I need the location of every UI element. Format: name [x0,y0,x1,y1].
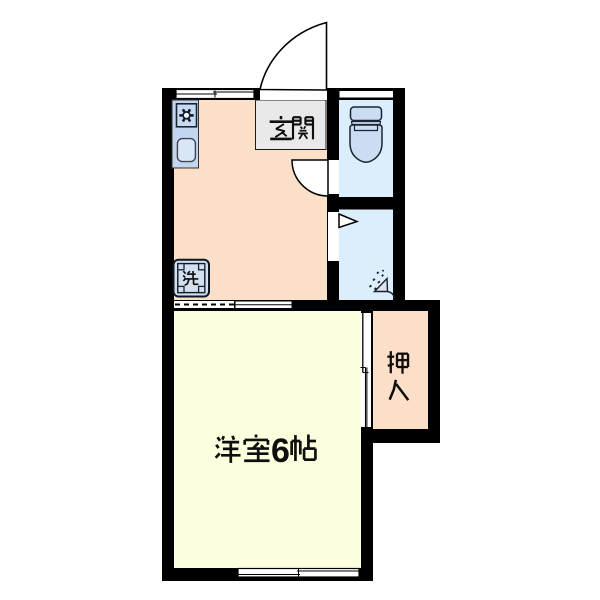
svg-text:6: 6 [271,432,290,470]
